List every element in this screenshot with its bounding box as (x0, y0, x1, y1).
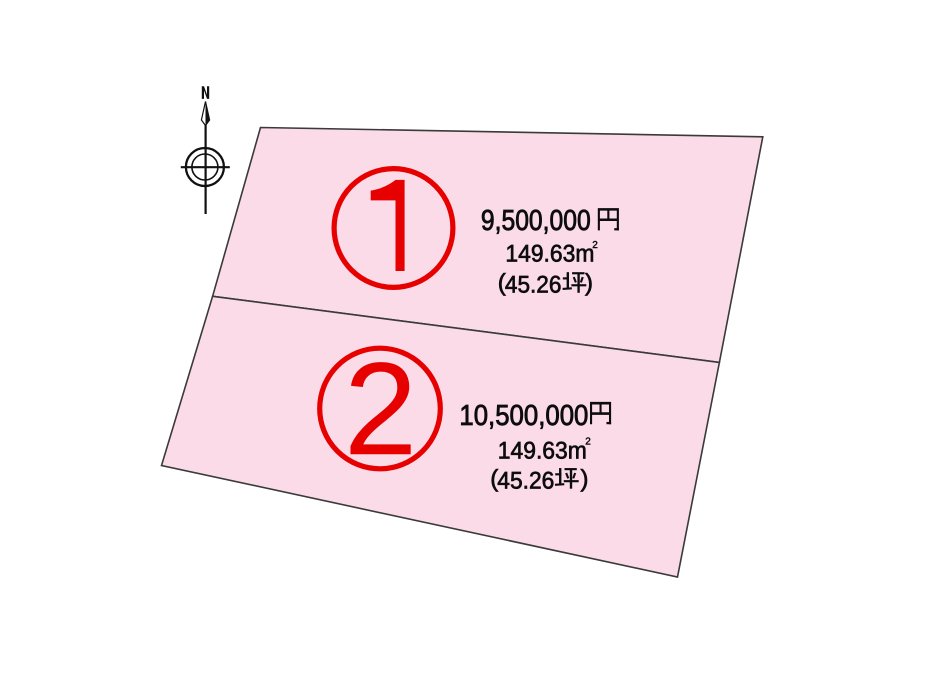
svg-text:2: 2 (585, 437, 591, 448)
svg-text:9,500,000: 9,500,000 (481, 205, 591, 237)
svg-text:): ) (585, 270, 593, 297)
svg-text:): ) (581, 465, 589, 492)
svg-text:2: 2 (592, 240, 598, 251)
svg-text:2: 2 (344, 335, 417, 482)
svg-text:149.63m: 149.63m (505, 241, 594, 268)
svg-text:10,500,000: 10,500,000 (459, 400, 588, 432)
svg-text:45.26: 45.26 (497, 467, 554, 494)
svg-text:45.26: 45.26 (505, 272, 562, 299)
svg-text:149.63m: 149.63m (498, 438, 587, 465)
